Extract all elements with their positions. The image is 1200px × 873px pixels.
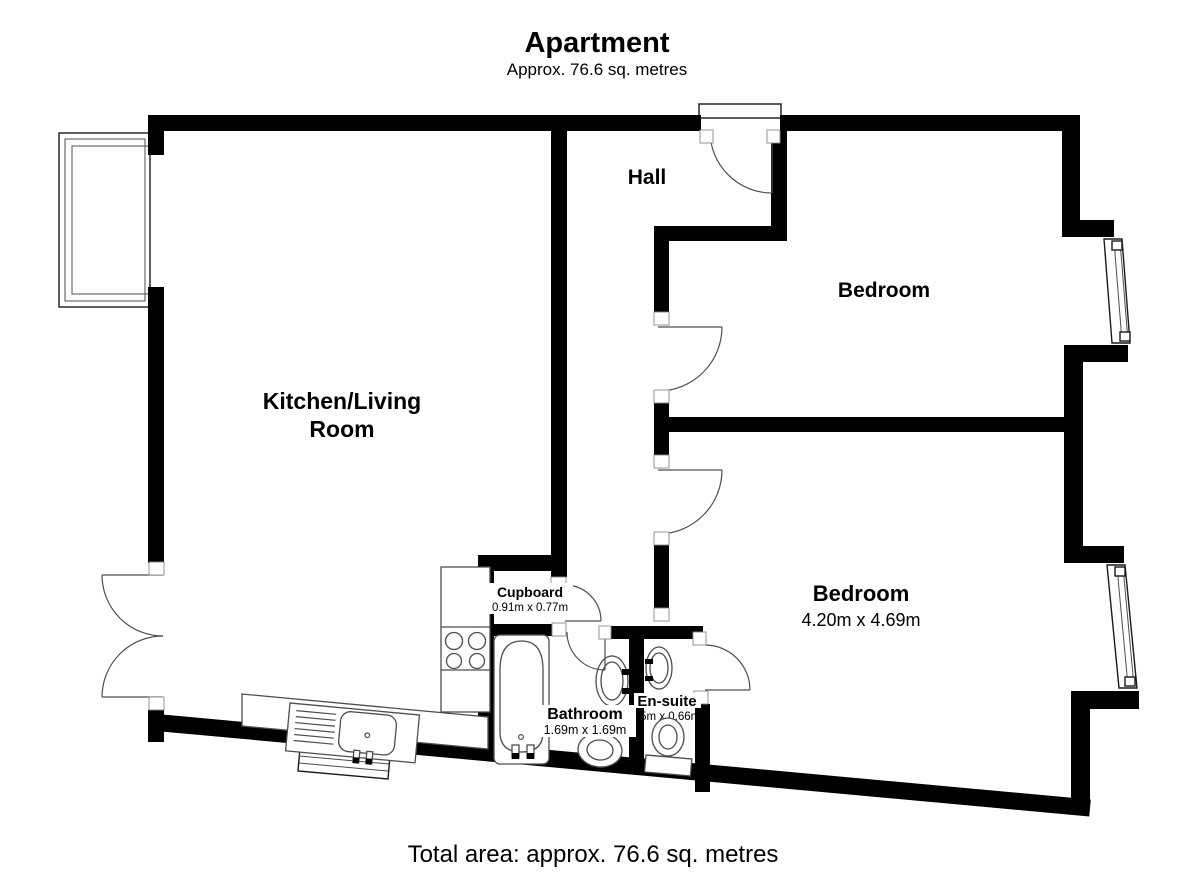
bathroom-name: Bathroom	[547, 706, 623, 723]
door-bedroom-top	[658, 327, 722, 391]
floorplan-svg: 75m x 0.66m	[0, 0, 1200, 873]
wall-right-lug1	[1062, 220, 1114, 237]
wall-right-lug4	[1071, 691, 1139, 709]
plan-subtitle: Approx. 76.6 sq. metres	[507, 60, 687, 79]
kitchen-hob	[441, 567, 490, 712]
room-label-bedroom-bottom: Bedroom 4.20m x 4.69m	[801, 581, 920, 630]
ensuite-toilet	[645, 718, 692, 776]
bedroom-bottom-dims: 4.20m x 4.69m	[801, 610, 920, 630]
room-label-kitchen-living: Kitchen/Living Room	[263, 388, 421, 442]
wall-right-lug3	[1064, 546, 1124, 563]
ensuite-basin	[645, 647, 672, 689]
plan-title: Apartment	[524, 27, 669, 59]
ensuite-name: En-suite	[637, 693, 696, 710]
cupboard-name: Cupboard	[497, 584, 563, 600]
bathroom-dims: 1.69m x 1.69m	[544, 723, 627, 737]
wall-bedroom-divider	[654, 417, 1083, 432]
entrance-door	[710, 131, 772, 193]
bay-window	[59, 133, 150, 307]
wall-ensuite-right	[695, 704, 710, 792]
kitchen-living-line1: Kitchen/Living	[263, 388, 421, 414]
wall-left	[148, 287, 164, 563]
room-label-cupboard: Cupboard 0.91m x 0.77m	[487, 583, 573, 614]
wall-kitchen-hall	[551, 131, 567, 577]
cupboard-dims: 0.91m x 0.77m	[492, 602, 568, 614]
wall-bathroom-top	[611, 626, 703, 639]
bathtub	[494, 635, 549, 764]
room-label-hall: Hall	[628, 166, 667, 189]
kitchen-living-line2: Room	[309, 416, 374, 442]
window-bedroom-top	[1104, 239, 1130, 343]
window-bedroom-bottom	[1107, 565, 1137, 688]
bathroom-basin	[596, 656, 631, 706]
wall-right-lug2	[1064, 345, 1128, 362]
wall-hall-right	[771, 131, 787, 241]
bedroom-bottom-name: Bedroom	[813, 581, 910, 606]
wall-top-right	[780, 115, 1080, 131]
wall-cupboard-bathroom	[483, 624, 553, 636]
door-ensuite	[705, 645, 750, 690]
room-label-bedroom-top: Bedroom	[838, 279, 930, 302]
wall-hall-bottom	[654, 226, 787, 241]
door-bedroom-bottom	[658, 470, 722, 534]
wall-right-b	[1064, 345, 1083, 563]
wall-left-stub	[148, 115, 164, 155]
room-label-bathroom: Bathroom 1.69m x 1.69m	[534, 705, 636, 737]
double-door-balcony	[102, 575, 163, 697]
wall-top-left	[148, 115, 701, 131]
room-label-ensuite: En-suite	[634, 693, 701, 710]
wall-right-a	[1062, 115, 1080, 237]
total-area-label: Total area: approx. 76.6 sq. metres	[408, 841, 779, 868]
entrance-threshold	[699, 104, 781, 118]
floor-plan-page: 75m x 0.66m	[0, 0, 1200, 873]
